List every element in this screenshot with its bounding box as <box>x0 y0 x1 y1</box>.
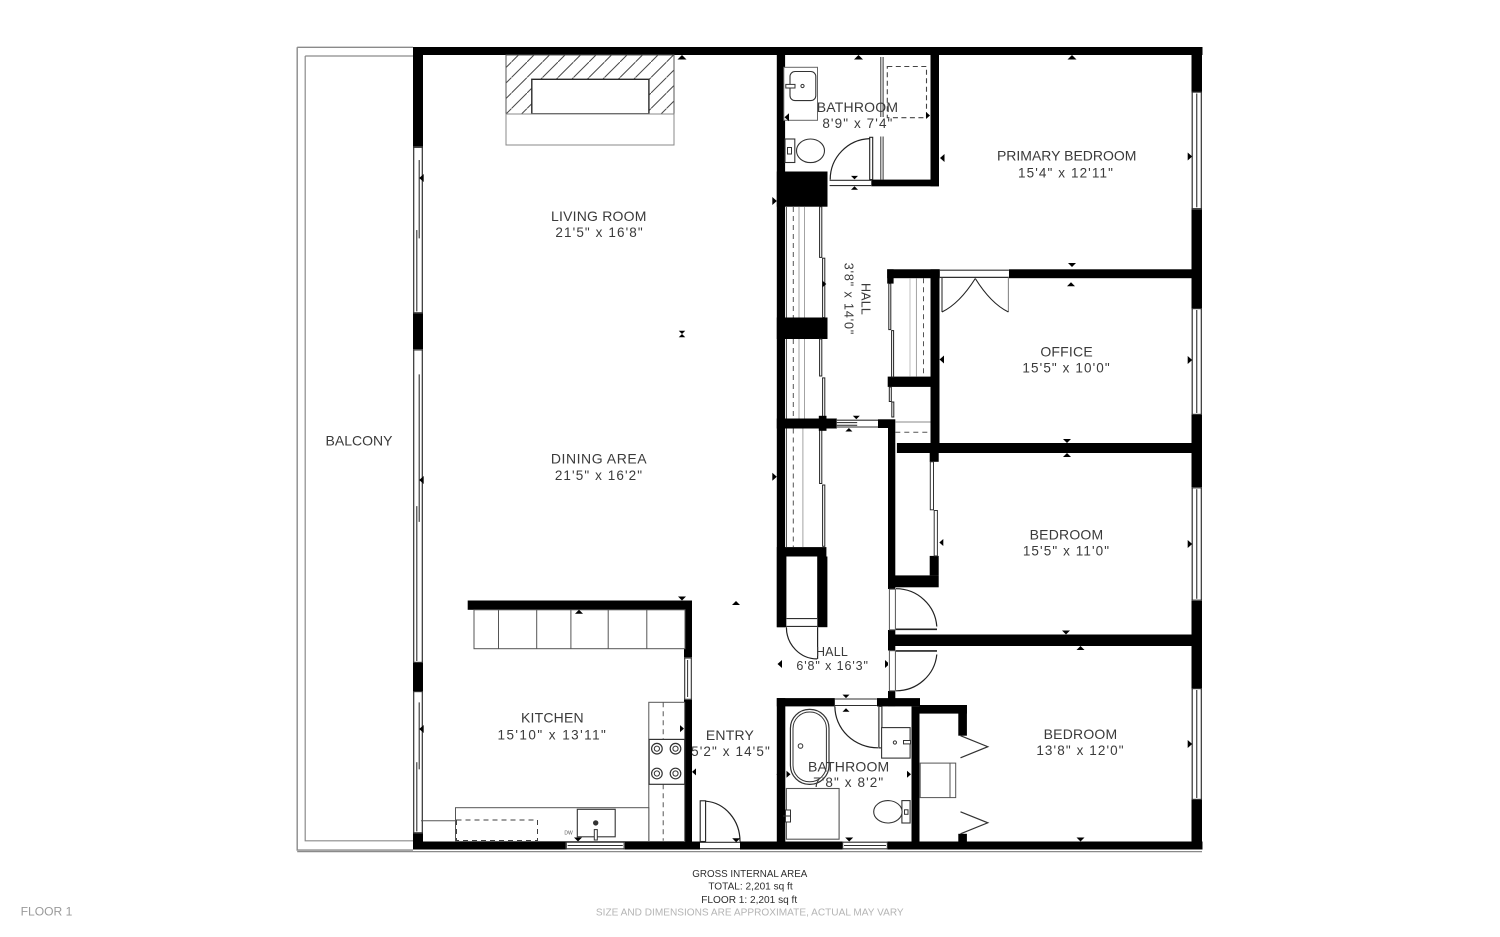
svg-text:BEDROOM: BEDROOM <box>1044 726 1118 742</box>
svg-text:DINING AREA: DINING AREA <box>551 451 647 467</box>
svg-text:FLOOR 1: FLOOR 1 <box>21 905 73 919</box>
svg-text:BEDROOM: BEDROOM <box>1030 526 1104 542</box>
svg-text:21'5" x 16'8": 21'5" x 16'8" <box>555 225 643 240</box>
svg-text:6'8" x 16'3": 6'8" x 16'3" <box>796 659 868 673</box>
svg-text:PRIMARY BEDROOM: PRIMARY BEDROOM <box>997 148 1137 164</box>
svg-text:HALL: HALL <box>859 283 873 315</box>
svg-text:OFFICE: OFFICE <box>1040 344 1093 360</box>
svg-text:BATHROOM: BATHROOM <box>817 99 898 115</box>
svg-text:SIZE AND DIMENSIONS ARE APPROX: SIZE AND DIMENSIONS ARE APPROXIMATE, ACT… <box>596 908 904 919</box>
svg-text:BATHROOM: BATHROOM <box>808 759 889 775</box>
svg-text:3'8" x 14'0": 3'8" x 14'0" <box>842 263 856 335</box>
svg-text:13'8" x 12'0": 13'8" x 12'0" <box>1036 743 1124 758</box>
svg-text:8'9" x 7'4": 8'9" x 7'4" <box>822 116 893 131</box>
svg-text:21'5" x 16'2": 21'5" x 16'2" <box>555 468 643 483</box>
svg-text:7'8" x 8'2": 7'8" x 8'2" <box>813 775 884 790</box>
svg-text:KITCHEN: KITCHEN <box>521 710 584 726</box>
svg-text:ENTRY: ENTRY <box>706 727 755 743</box>
svg-text:5'2" x 14'5": 5'2" x 14'5" <box>691 744 771 759</box>
svg-text:GROSS INTERNAL AREA: GROSS INTERNAL AREA <box>692 869 808 880</box>
svg-text:15'4" x 12'11": 15'4" x 12'11" <box>1018 166 1114 181</box>
svg-text:15'5" x 10'0": 15'5" x 10'0" <box>1022 360 1110 375</box>
svg-text:TOTAL: 2,201 sq ft: TOTAL: 2,201 sq ft <box>708 882 793 893</box>
svg-text:HALL: HALL <box>816 645 848 659</box>
svg-text:15'5" x 11'0": 15'5" x 11'0" <box>1023 544 1110 559</box>
svg-text:LIVING ROOM: LIVING ROOM <box>551 208 647 224</box>
svg-text:FLOOR 1: 2,201 sq ft: FLOOR 1: 2,201 sq ft <box>701 895 797 906</box>
svg-text:15'10" x 13'11": 15'10" x 13'11" <box>497 728 607 743</box>
svg-text:BALCONY: BALCONY <box>326 433 394 449</box>
svg-text:DW: DW <box>564 831 573 837</box>
